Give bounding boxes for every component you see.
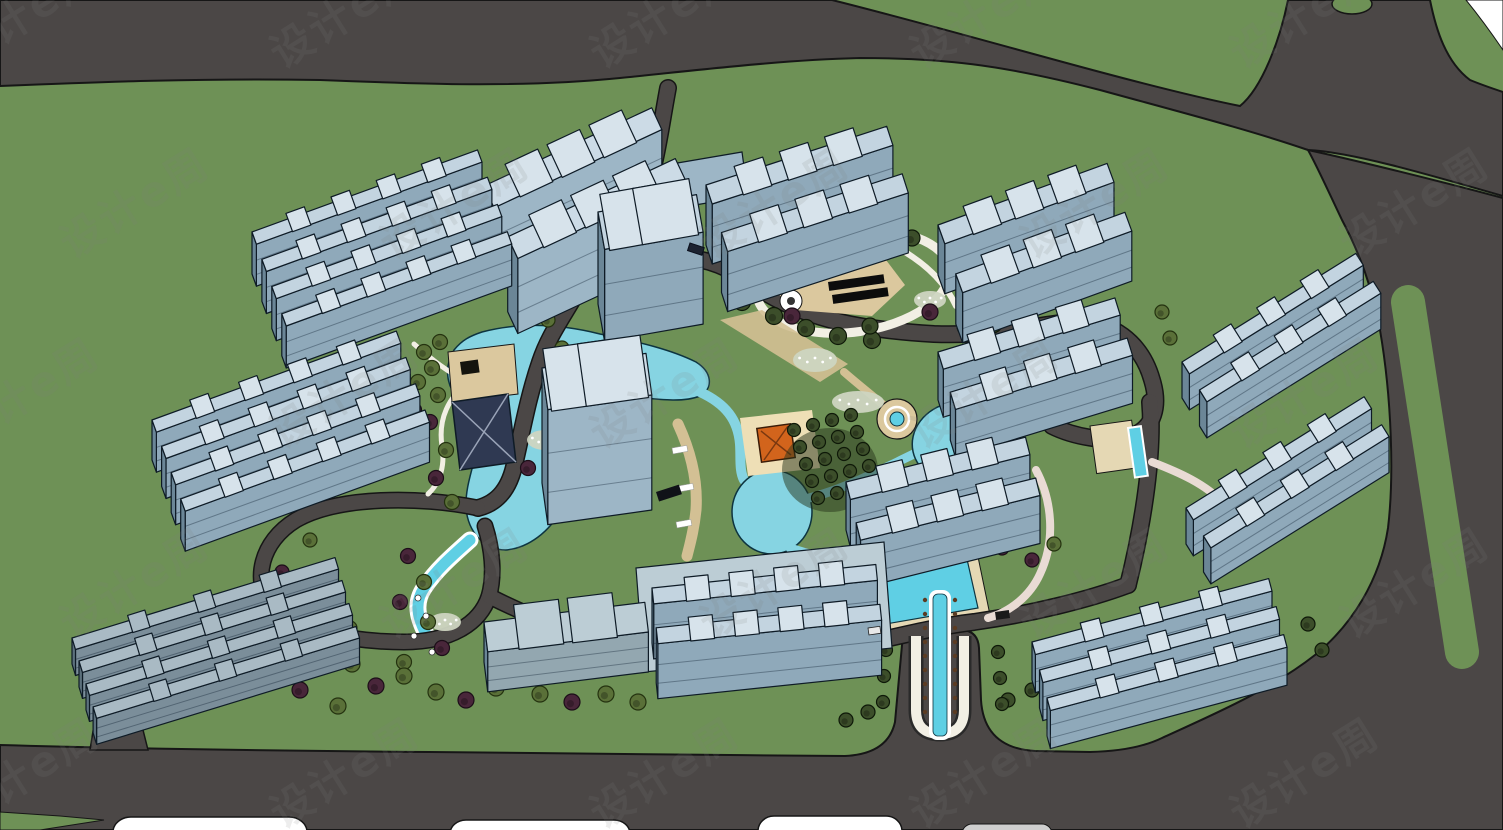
site-plan-scene (0, 0, 1503, 830)
rock (415, 595, 421, 601)
building-cluster-south-center (652, 561, 882, 699)
tower-central (542, 335, 652, 524)
water-canal (933, 594, 947, 736)
car (868, 626, 881, 635)
traffic-island (1332, 0, 1372, 14)
shrub-bed (832, 391, 884, 413)
rock (411, 633, 417, 639)
master-plan-render: 设计e周设计e周设计e周设计e周设计e周设计e周设计e周设计e周设计e周设计e周… (0, 0, 1503, 830)
tower-central-north (598, 179, 703, 342)
rock (423, 613, 429, 619)
pergola-table (460, 359, 480, 374)
garden-deck-west (448, 344, 518, 402)
fountain (890, 412, 904, 426)
rock (429, 649, 435, 655)
shrub-bed (793, 348, 837, 372)
